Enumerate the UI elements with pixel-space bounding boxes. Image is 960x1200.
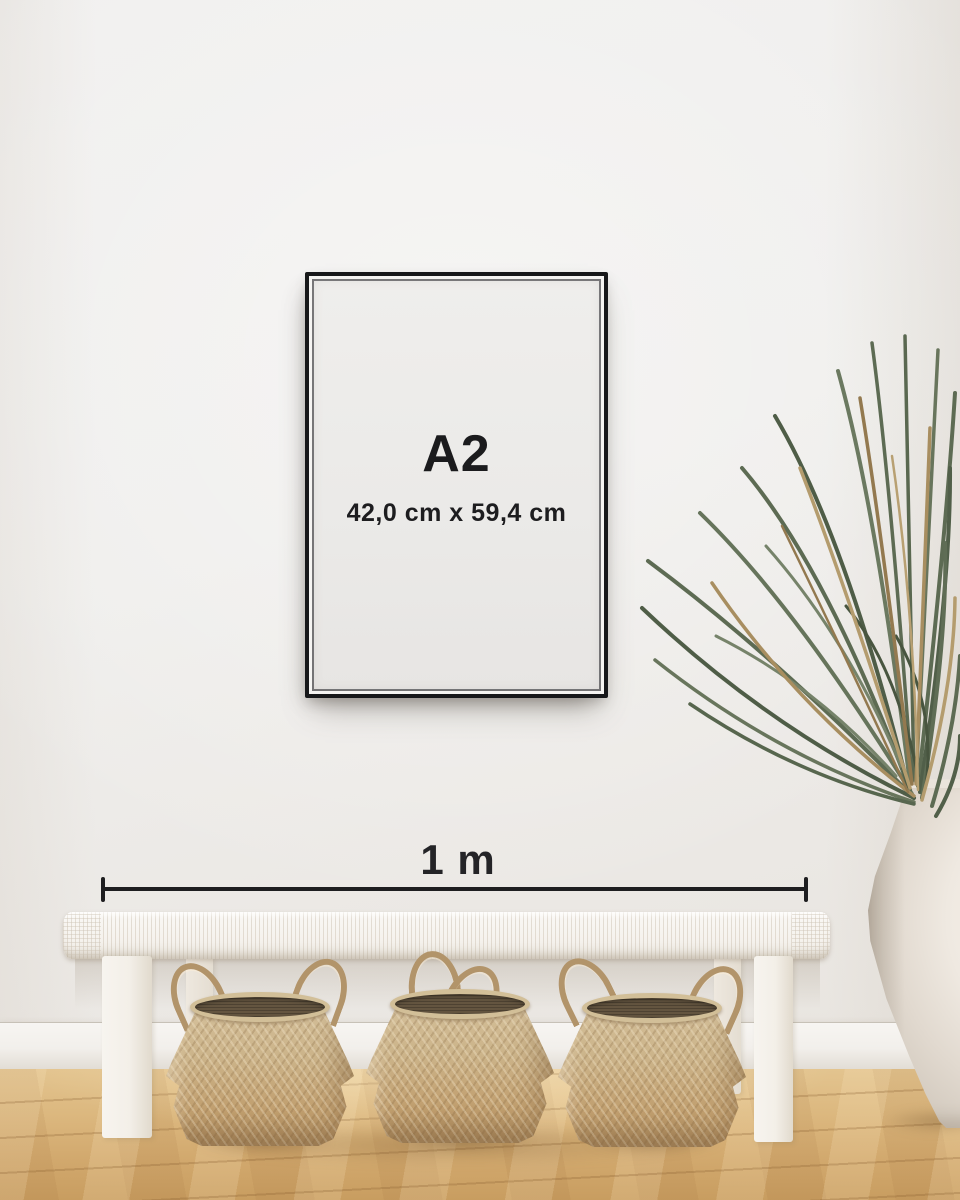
belly-basket-left: [166, 1000, 354, 1146]
bench-seat: [63, 912, 830, 959]
measure-label: 1 m: [358, 839, 558, 881]
basket-rim: [190, 992, 329, 1022]
bench-leg-front-left: [102, 956, 152, 1138]
measure-line: [101, 887, 808, 891]
measure-tick-left: [101, 877, 105, 902]
picture-frame: A2 42,0 cm x 59,4 cm: [305, 272, 608, 698]
frame-dimensions-label: 42,0 cm x 59,4 cm: [347, 501, 567, 526]
belly-basket-middle: [366, 997, 554, 1143]
belly-basket-right: [558, 1001, 746, 1147]
basket-rim: [582, 993, 721, 1023]
bench-seat-end-left: [63, 912, 101, 959]
bench-leg-front-right: [754, 956, 793, 1142]
measure-tick-right: [804, 877, 808, 902]
palm-fronds-green: [642, 336, 960, 816]
basket-body: [166, 1006, 354, 1146]
basket-rim: [390, 989, 529, 1019]
frame-size-label: A2: [422, 428, 490, 480]
room-scene: A2 42,0 cm x 59,4 cm 1 m: [0, 0, 960, 1200]
palm-plant: [596, 306, 960, 830]
bench-seat-end-right: [792, 912, 830, 959]
basket-body: [366, 1003, 554, 1143]
frame-paper: A2 42,0 cm x 59,4 cm: [309, 276, 604, 694]
basket-body: [558, 1007, 746, 1147]
